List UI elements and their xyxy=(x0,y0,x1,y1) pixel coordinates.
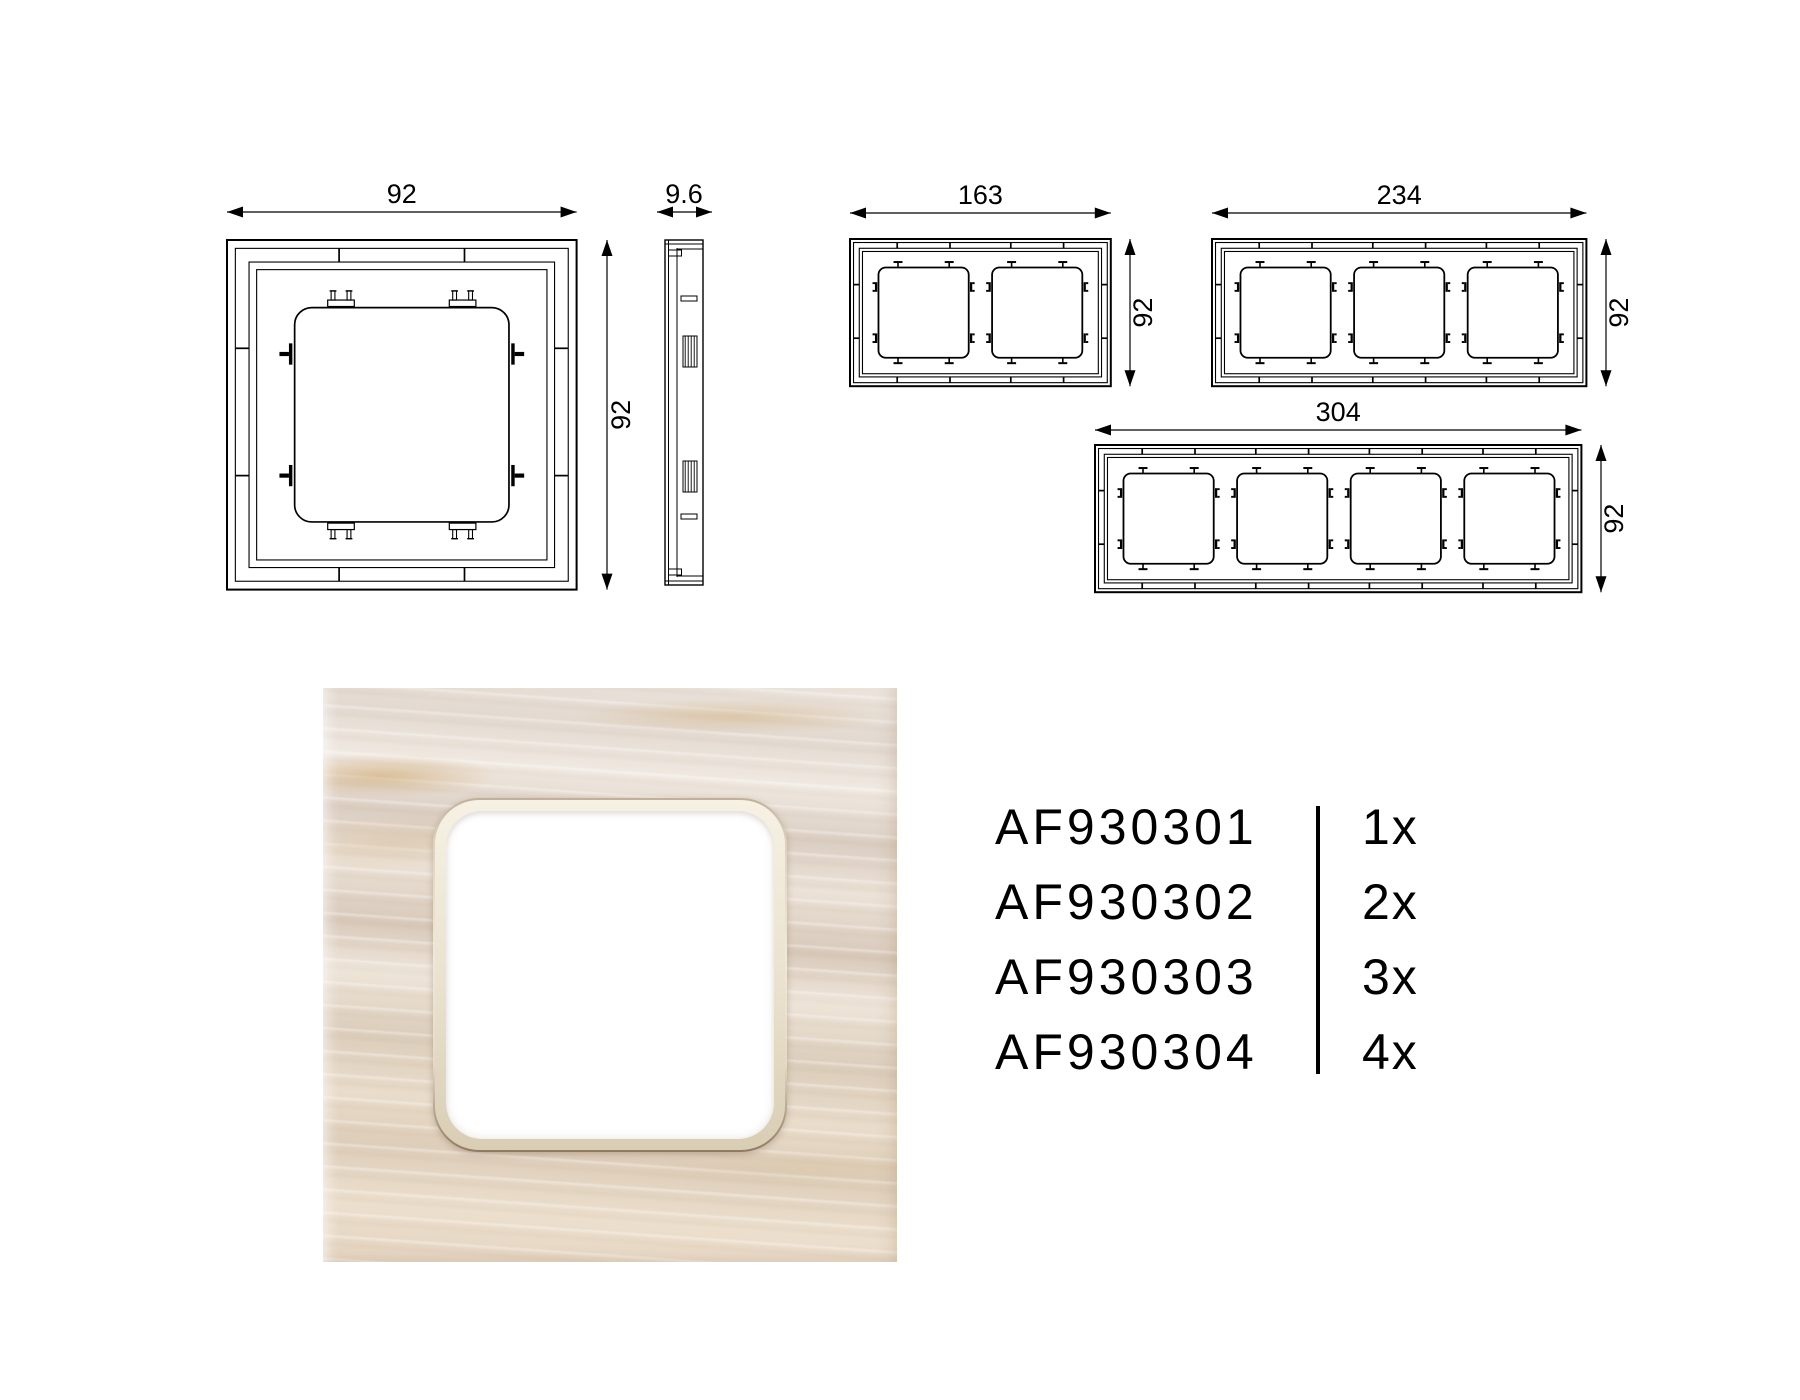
product-quantity: 4x xyxy=(1362,1023,1419,1081)
drawing-front-1gang: 9292 xyxy=(227,179,636,590)
product-code: AF930304 xyxy=(995,1023,1362,1081)
product-photo xyxy=(323,688,897,1262)
photo-opening-rim xyxy=(433,798,787,1152)
photo-opening xyxy=(446,811,774,1139)
product-code: AF930303 xyxy=(995,948,1362,1006)
product-row: AF9303011x xyxy=(995,789,1555,864)
product-code: AF930301 xyxy=(995,798,1362,856)
drawing-side-view: 9.6 xyxy=(657,179,712,585)
product-row: AF9303022x xyxy=(995,864,1555,939)
product-table: AF9303011xAF9303022xAF9303033xAF9303044x xyxy=(995,789,1555,1089)
drawing-front-2gang: 16392 xyxy=(850,180,1158,386)
dimension-label: 304 xyxy=(1316,397,1361,427)
photo-opening-bezel xyxy=(435,800,785,1150)
product-code: AF930302 xyxy=(995,873,1362,931)
dimension-label: 92 xyxy=(606,400,636,430)
drawing-front-3gang: 23492 xyxy=(1212,180,1634,386)
dimension-label: 92 xyxy=(1604,298,1634,328)
product-row: AF9303033x xyxy=(995,939,1555,1014)
datasheet: 92929.6163922349230492 AF9303011xAF93030… xyxy=(0,0,1800,1400)
dimension-label: 92 xyxy=(387,179,417,209)
dimension-label: 92 xyxy=(1599,504,1629,534)
product-quantity: 2x xyxy=(1362,873,1419,931)
technical-drawings: 92929.6163922349230492 xyxy=(0,0,1800,680)
dimension-label: 9.6 xyxy=(665,179,703,209)
product-quantity: 3x xyxy=(1362,948,1419,1006)
dimension-label: 163 xyxy=(958,180,1003,210)
dimension-label: 92 xyxy=(1128,298,1158,328)
drawing-front-4gang: 30492 xyxy=(1095,397,1629,592)
table-divider-line xyxy=(1316,806,1320,1074)
product-row: AF9303044x xyxy=(995,1014,1555,1089)
dimension-label: 234 xyxy=(1377,180,1422,210)
product-quantity: 1x xyxy=(1362,798,1419,856)
